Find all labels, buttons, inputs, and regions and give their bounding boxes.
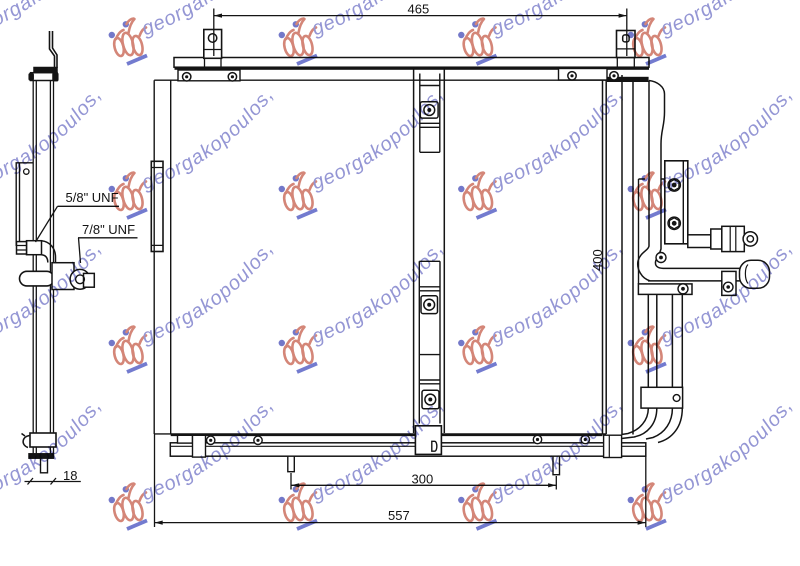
svg-text:5/8" UNF: 5/8" UNF (66, 190, 119, 205)
svg-text:300: 300 (412, 472, 434, 487)
svg-text:7/8" UNF: 7/8" UNF (82, 222, 135, 237)
svg-text:557: 557 (388, 508, 410, 523)
svg-text:465: 465 (408, 2, 430, 17)
svg-text:18: 18 (63, 468, 77, 483)
